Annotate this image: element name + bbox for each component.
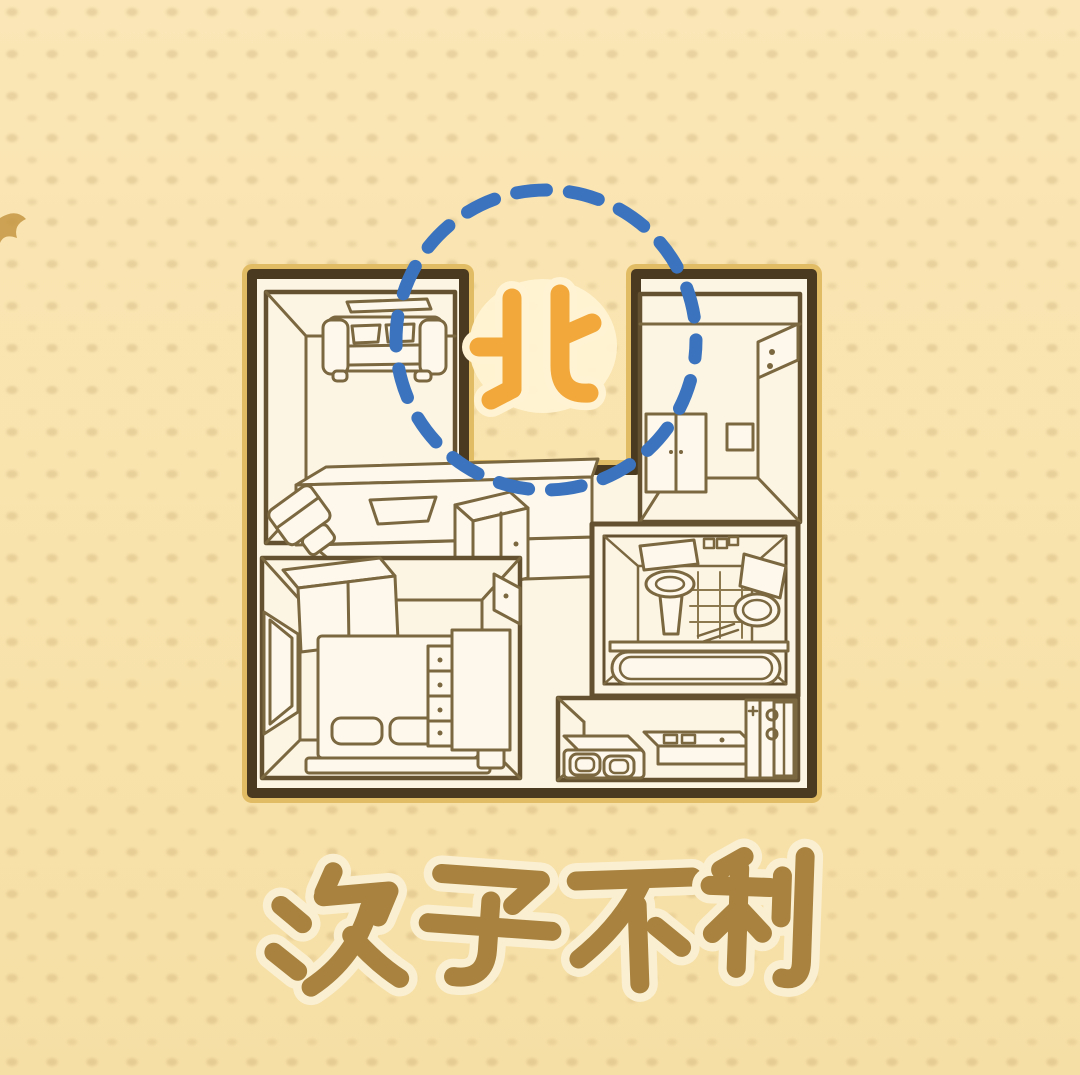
poster: 北 次子不利 — [0, 0, 1080, 1075]
floor-plan-illustration — [0, 0, 1080, 1075]
north-label — [469, 279, 617, 413]
caption-char-3 — [576, 877, 696, 986]
room-bedroom — [262, 558, 520, 778]
stove — [564, 736, 644, 778]
caption-char-4 — [707, 853, 805, 979]
caption-text — [267, 853, 805, 990]
refrigerator — [746, 700, 796, 778]
room-closet — [640, 294, 800, 522]
picture-frame — [727, 424, 753, 450]
ledge — [610, 642, 788, 651]
vanity — [640, 540, 698, 570]
bathtub — [612, 652, 780, 684]
counter — [644, 732, 754, 764]
wardrobe — [646, 414, 706, 492]
room-bathroom — [592, 524, 798, 696]
footboard — [306, 758, 490, 773]
dresser — [428, 630, 510, 750]
pillow — [332, 718, 382, 744]
caption-char-1 — [267, 867, 399, 990]
edge-decoration — [0, 213, 26, 243]
wall-shelf — [347, 299, 431, 312]
window — [264, 612, 298, 734]
room-kitchen — [558, 698, 798, 780]
caption-char-2 — [425, 873, 556, 984]
